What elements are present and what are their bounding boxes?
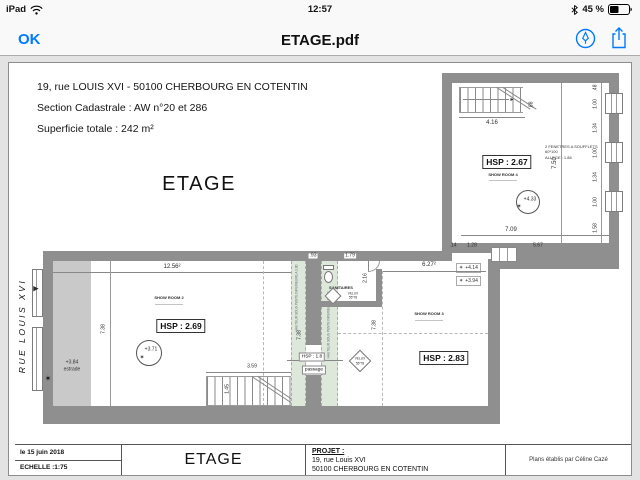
project-label: PROJET : [312, 447, 499, 456]
velux-label: VELUX [355, 357, 365, 360]
estrade-platform [53, 261, 91, 406]
dim-label: 3.59 [246, 365, 258, 370]
room3-name: SHOW ROOM 3 [414, 312, 443, 316]
street-window-2 [32, 327, 43, 391]
ipad-screen: iPad 12:57 45 % OK ETAGE.pdf 19, rue LOU… [0, 0, 640, 480]
dim-line [459, 117, 525, 118]
window-note: ALLEGE : 1.86 [545, 156, 603, 161]
street-window-1 [32, 269, 43, 317]
stair-arrow-icon: ▸ [510, 97, 513, 103]
dim-line [110, 261, 111, 406]
dim-label: 7.38 [373, 320, 378, 330]
dim-label: 1.28 [467, 244, 477, 249]
level-star-icon: ✶ [139, 355, 144, 361]
dim-label: 1.34 [594, 172, 599, 182]
level-marker: ✶ +3.94 [456, 276, 481, 286]
plan-scale: ECHELLE :1:75 [15, 461, 121, 476]
dim-label: 1.79 [344, 254, 356, 259]
battery-icon [608, 4, 633, 15]
credit-cell: Plans établis par Céline Cazé [505, 445, 631, 475]
room3-hsp-label: HSP : 2.83 [419, 351, 468, 365]
band-bottom-wall [43, 406, 500, 424]
room4-window-3 [605, 191, 623, 212]
dim-line [461, 235, 609, 236]
dim-label: 1.45 [226, 384, 231, 394]
estrade-label: estrade [64, 368, 81, 373]
slope-note: HAUTEUR SOUS PENTE INFERIEURE A 1.80 [295, 265, 298, 332]
velux-size: 55*78 [349, 296, 357, 299]
plan-header: 19, rue LOUIS XVI - 50100 CHERBOURG EN C… [37, 77, 308, 140]
plan-date: le 15 juin 2018 [15, 445, 121, 461]
dim-label: 6.27² [421, 262, 437, 268]
north-star-icon: ✶ [45, 375, 52, 383]
bluetooth-icon [571, 5, 578, 15]
dim-label: 12.56² [162, 264, 181, 270]
dim-chain-line [601, 83, 602, 243]
dim-line [53, 272, 291, 273]
title-block-date-cell: le 15 juin 2018 ECHELLE :1:75 [15, 445, 121, 475]
toolbar-actions [575, 27, 628, 49]
pdf-page[interactable]: 19, rue LOUIS XVI - 50100 CHERBOURG EN C… [8, 62, 632, 476]
room4-window-1 [605, 93, 623, 114]
room-subtext-line [489, 180, 517, 181]
landing-steps [491, 247, 517, 262]
share-icon[interactable] [610, 27, 628, 49]
toilet-bowl [324, 271, 333, 283]
construction-line [382, 271, 383, 406]
title-block: le 15 juin 2018 ECHELLE :1:75 ETAGE PROJ… [15, 444, 631, 475]
room-subtext-line [155, 304, 183, 305]
dim-label: 7.38 [298, 330, 303, 340]
room4-window-2 [605, 142, 623, 163]
dim-label: 4.16 [486, 120, 498, 126]
room4-hsp-label: HSP : 2.67 [482, 155, 531, 169]
project-address-1: 19, rue Louis XVI [312, 456, 499, 465]
cadastre-line: Section Cadastrale : AW n°20 et 286 [37, 98, 308, 119]
dim-label: .88 [530, 102, 535, 109]
toilet-tank [323, 265, 334, 270]
stair-direction-line [463, 99, 509, 100]
dim-label: 2.16 [364, 273, 369, 283]
status-right: 45 % [571, 4, 633, 15]
address-line: 19, rue LOUIS XVI - 50100 CHERBOURG EN C… [37, 77, 308, 98]
construction-line [338, 333, 488, 334]
project-address-2: 50100 CHERBOURG EN COTENTIN [312, 465, 499, 474]
level-circle [136, 340, 162, 366]
dim-label: .48 [594, 85, 599, 92]
level-value: +3.71 [145, 348, 158, 353]
dim-label: .93 [309, 254, 318, 259]
dim-line [561, 83, 562, 243]
velux-size: 55*78 [356, 362, 364, 365]
dim-label: 1.00 [594, 197, 599, 207]
document-title: ETAGE.pdf [0, 32, 640, 49]
dim-label: 5.67 [533, 244, 543, 249]
room2-name: SHOW ROOM 2 [154, 296, 183, 300]
window-note: 2 FENETRES A SOUFFLETS 60*100 [545, 145, 603, 154]
markup-icon[interactable] [575, 28, 596, 49]
project-cell: PROJET : 19, rue Louis XVI 50100 CHERBOU… [305, 445, 505, 475]
area-line: Superficie totale : 242 m² [37, 119, 308, 140]
dim-label: 1.34 [594, 123, 599, 133]
level-value: +4.33 [524, 198, 537, 203]
sheet-name: ETAGE [121, 445, 305, 475]
dim-label: 7.09 [505, 227, 517, 233]
dim-label: 7.38 [102, 324, 107, 334]
street-name: RUE LOUIS XVI [18, 279, 27, 373]
estrade-level: +3.84 [66, 361, 79, 366]
passage-hsp-label: HSP : 1.8 [299, 353, 325, 362]
street-arrow-icon: ▶ [33, 286, 38, 293]
room2-staircase [206, 376, 298, 406]
dim-line [206, 372, 298, 373]
top-bars: iPad 12:57 45 % OK ETAGE.pdf [0, 0, 640, 56]
dim-label: 1.58 [594, 223, 599, 233]
level-star-icon: ✶ [459, 278, 463, 284]
passage-label: passage [302, 366, 326, 375]
room2-hsp-label: HSP : 2.69 [156, 319, 205, 333]
room-subtext-line [415, 320, 443, 321]
band-left-wall [43, 251, 53, 424]
middle-wall-lower [306, 375, 321, 406]
floor-title: ETAGE [9, 173, 389, 196]
level-value: +3.94 [465, 278, 478, 284]
battery-percent: 45 % [582, 4, 604, 15]
level-star-icon: ✶ [516, 204, 521, 210]
dim-label: .14 [450, 244, 457, 249]
room4-name: SHOW ROOM 4 [488, 173, 517, 177]
middle-wall-upper [306, 261, 321, 345]
status-time: 12:57 [0, 4, 640, 15]
band-top-wall [43, 251, 452, 261]
dim-label: 1.00 [594, 99, 599, 109]
room3-right-wall [488, 259, 500, 424]
dim-line [381, 271, 486, 272]
